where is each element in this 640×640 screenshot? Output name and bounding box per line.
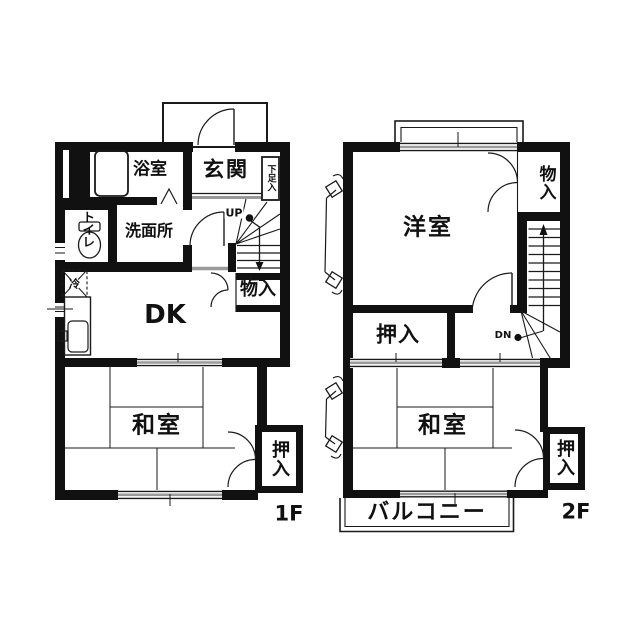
entrance-step-line bbox=[192, 194, 262, 198]
room-label-closet-2f-left: 押入 bbox=[376, 325, 420, 346]
refrigerator-label: 冷 bbox=[69, 278, 80, 289]
closet-doors-2f-icon bbox=[515, 430, 544, 487]
room-label-japanese-room-2f: 和室 bbox=[416, 415, 470, 438]
floor-plan-canvas: 浴室 玄関 下足入 トイレ 洗面所 UP 物入 DK 和室 押入 1F 冷 洋室… bbox=[0, 0, 640, 640]
room-label-entrance: 玄関 bbox=[203, 160, 249, 181]
casement-window-lower-icon bbox=[326, 377, 344, 459]
stairs-down-label: DN bbox=[494, 331, 513, 341]
room-label-dk: DK bbox=[144, 302, 186, 328]
room-label-storage-2f: 物入 bbox=[537, 165, 554, 201]
western-room-window-icon bbox=[400, 132, 517, 152]
western-room-door-icon bbox=[472, 273, 512, 313]
storage-bifold-doors-icon bbox=[211, 273, 228, 307]
room-label-bath: 浴室 bbox=[133, 162, 167, 179]
room-label-western-room: 洋室 bbox=[403, 217, 453, 240]
bathtub-icon bbox=[95, 151, 128, 196]
room-label-japanese-room-1f: 和室 bbox=[130, 415, 184, 438]
room-label-toilet: トイレ bbox=[81, 210, 94, 248]
entrance-door-icon bbox=[198, 109, 234, 145]
room-label-storage-1f: 物入 bbox=[240, 281, 276, 299]
washitsu-south-window-icon bbox=[118, 490, 222, 506]
room-label-balcony: バルコニー bbox=[367, 502, 487, 524]
closet-doors-1f-icon bbox=[228, 432, 256, 487]
casement-window-upper-icon bbox=[325, 175, 343, 295]
bath-door-icon bbox=[157, 189, 183, 205]
floor-label-1f: 1F bbox=[275, 504, 304, 525]
toilet-window-icon bbox=[55, 248, 65, 254]
closet-slider-2f-icon bbox=[350, 353, 442, 368]
floor-label-2f: 2F bbox=[562, 502, 591, 523]
hall-dk-door-icon bbox=[190, 212, 224, 246]
entrance-porch-outline bbox=[163, 103, 267, 147]
dk-washitsu-window-icon bbox=[137, 353, 222, 367]
kitchen-window-icon bbox=[47, 307, 73, 312]
floor-plan-drawing bbox=[0, 0, 640, 640]
stairs-up-label: UP bbox=[225, 208, 244, 219]
storage-doors-2f-icon bbox=[488, 152, 518, 212]
landing-slider-2f-icon bbox=[460, 353, 540, 368]
bay-window-outline-2f bbox=[395, 121, 523, 143]
room-label-shoe-cabinet: 下足入 bbox=[266, 165, 275, 192]
room-label-closet-1f: 押入 bbox=[270, 440, 288, 478]
room-label-closet-2f-right: 押入 bbox=[555, 439, 573, 477]
room-label-washroom: 洗面所 bbox=[125, 223, 173, 239]
